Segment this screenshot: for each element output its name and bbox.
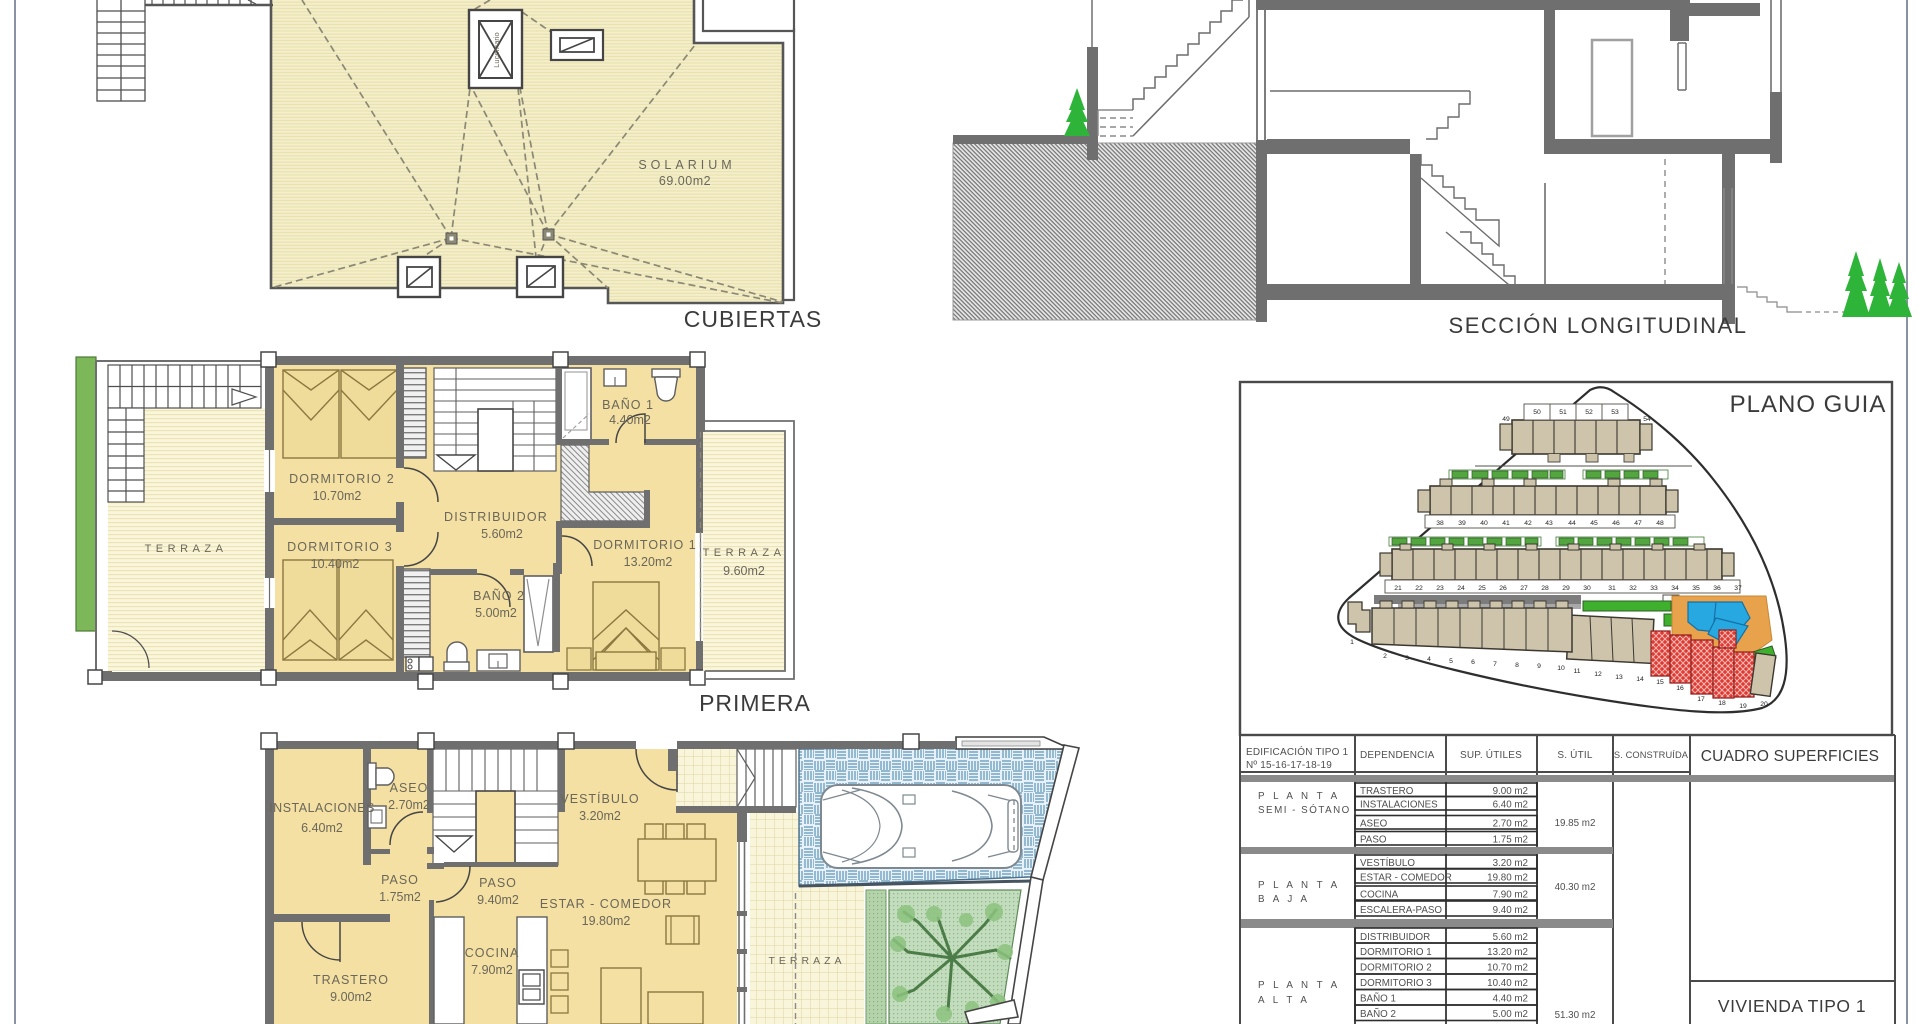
svg-text:6: 6 [1471, 659, 1475, 666]
svg-text:48: 48 [1656, 520, 1664, 527]
svg-text:33: 33 [1650, 585, 1658, 592]
svg-text:P L A N T A: P L A N T A [1258, 791, 1340, 802]
svg-text:TERRAZA: TERRAZA [703, 547, 786, 559]
svg-text:36: 36 [1713, 585, 1721, 592]
svg-text:40: 40 [1480, 520, 1488, 527]
svg-text:7.90 m2: 7.90 m2 [1493, 890, 1528, 901]
svg-text:32: 32 [1629, 585, 1637, 592]
svg-text:15: 15 [1656, 679, 1664, 686]
svg-text:43: 43 [1545, 520, 1553, 527]
svg-text:12: 12 [1594, 671, 1602, 678]
svg-text:BAÑO 2: BAÑO 2 [473, 589, 525, 603]
svg-text:S. CONSTRUÍDA: S. CONSTRUÍDA [1614, 750, 1689, 760]
svg-text:13: 13 [1615, 674, 1623, 681]
svg-text:41: 41 [1502, 520, 1510, 527]
svg-text:40.30 m2: 40.30 m2 [1555, 882, 1596, 893]
svg-text:54: 54 [1643, 416, 1651, 423]
svg-text:3.20m2: 3.20m2 [579, 809, 621, 823]
svg-text:10: 10 [1557, 665, 1565, 672]
svg-text:9.00m2: 9.00m2 [330, 990, 372, 1004]
svg-text:49: 49 [1502, 416, 1510, 423]
svg-text:9.00 m2: 9.00 m2 [1493, 786, 1528, 797]
svg-text:5.60 m2: 5.60 m2 [1493, 932, 1528, 943]
svg-text:9.60m2: 9.60m2 [723, 564, 765, 578]
svg-text:4: 4 [1427, 656, 1431, 663]
svg-text:7.90m2: 7.90m2 [471, 963, 513, 977]
svg-text:44: 44 [1568, 520, 1576, 527]
svg-text:29: 29 [1562, 585, 1570, 592]
svg-text:PASO: PASO [479, 876, 517, 890]
svg-text:51.30 m2: 51.30 m2 [1555, 1010, 1596, 1021]
svg-text:ASEO: ASEO [390, 781, 429, 795]
svg-text:2.70m2: 2.70m2 [388, 798, 430, 812]
svg-text:BAÑO 1: BAÑO 1 [602, 398, 654, 412]
svg-text:28: 28 [1541, 585, 1549, 592]
svg-text:24: 24 [1457, 585, 1465, 592]
svg-text:30: 30 [1583, 585, 1591, 592]
svg-text:4.40 m2: 4.40 m2 [1493, 994, 1528, 1005]
svg-text:23: 23 [1436, 585, 1444, 592]
svg-text:COCINA: COCINA [1360, 890, 1399, 901]
svg-text:COCINA: COCINA [465, 946, 520, 960]
svg-text:10.70m2: 10.70m2 [313, 489, 362, 503]
svg-text:51: 51 [1559, 409, 1567, 416]
svg-text:A L T A: A L T A [1258, 995, 1310, 1006]
svg-text:PASO: PASO [1360, 835, 1387, 846]
svg-text:5: 5 [1449, 658, 1453, 665]
svg-text:Nº 15-16-17-18-19: Nº 15-16-17-18-19 [1246, 760, 1332, 771]
svg-text:5.00m2: 5.00m2 [475, 606, 517, 620]
svg-text:16: 16 [1676, 685, 1684, 692]
svg-text:SEMI - SÓTANO: SEMI - SÓTANO [1258, 805, 1351, 816]
svg-text:1.75 m2: 1.75 m2 [1493, 835, 1528, 846]
svg-text:35: 35 [1692, 585, 1700, 592]
svg-text:25: 25 [1478, 585, 1486, 592]
svg-text:Lucernario: Lucernario [492, 32, 501, 67]
svg-text:5.00 m2: 5.00 m2 [1493, 1009, 1528, 1020]
svg-text:P L A N T A: P L A N T A [1258, 880, 1340, 891]
svg-text:CUADRO SUPERFICIES: CUADRO SUPERFICIES [1701, 748, 1879, 765]
svg-text:DORMITORIO 2: DORMITORIO 2 [1360, 963, 1432, 974]
svg-text:ESTAR - COMEDOR: ESTAR - COMEDOR [540, 897, 672, 911]
svg-text:6.40 m2: 6.40 m2 [1493, 800, 1528, 811]
svg-text:VESTÍBULO: VESTÍBULO [560, 791, 639, 806]
svg-text:SOLARIUM: SOLARIUM [638, 158, 735, 172]
svg-text:42: 42 [1524, 520, 1532, 527]
svg-text:ESCALERA-PASO: ESCALERA-PASO [1360, 905, 1442, 916]
svg-text:1.75m2: 1.75m2 [379, 890, 421, 904]
svg-text:3.20 m2: 3.20 m2 [1493, 858, 1528, 869]
svg-text:INSTALACIONES: INSTALACIONES [1360, 800, 1438, 811]
svg-text:2.70 m2: 2.70 m2 [1493, 819, 1528, 830]
svg-text:46: 46 [1612, 520, 1620, 527]
svg-text:69.00m2: 69.00m2 [659, 174, 711, 188]
svg-text:TERRAZA: TERRAZA [145, 543, 228, 555]
svg-text:TERRAZA: TERRAZA [768, 955, 845, 967]
svg-text:50: 50 [1533, 409, 1541, 416]
svg-text:3: 3 [1405, 655, 1409, 662]
svg-text:VIVIENDA TIPO 1: VIVIENDA TIPO 1 [1718, 996, 1866, 1016]
svg-text:B A J A: B A J A [1258, 894, 1310, 905]
svg-text:38: 38 [1436, 520, 1444, 527]
svg-text:PLANO GUIA: PLANO GUIA [1730, 391, 1887, 418]
svg-text:8: 8 [1515, 662, 1519, 669]
svg-text:DORMITORIO 3: DORMITORIO 3 [287, 540, 393, 554]
svg-text:SUP. ÚTILES: SUP. ÚTILES [1460, 748, 1522, 761]
svg-text:22: 22 [1415, 585, 1423, 592]
svg-text:ASEO: ASEO [1360, 819, 1388, 830]
svg-text:7: 7 [1493, 661, 1497, 668]
svg-text:10.40 m2: 10.40 m2 [1487, 978, 1528, 989]
svg-text:27: 27 [1520, 585, 1528, 592]
svg-text:20: 20 [1760, 701, 1768, 708]
svg-text:9.40 m2: 9.40 m2 [1493, 905, 1528, 916]
svg-text:47: 47 [1634, 520, 1642, 527]
svg-text:VESTÍBULO: VESTÍBULO [1360, 858, 1415, 869]
svg-text:DISTRIBUIDOR: DISTRIBUIDOR [1360, 932, 1430, 943]
svg-text:6.40m2: 6.40m2 [301, 821, 343, 835]
svg-text:INSTALACIONES: INSTALACIONES [269, 801, 375, 815]
svg-text:37: 37 [1734, 585, 1742, 592]
svg-text:53: 53 [1611, 409, 1619, 416]
svg-text:11: 11 [1573, 668, 1580, 675]
svg-text:DORMITORIO 2: DORMITORIO 2 [289, 472, 395, 486]
svg-text:DISTRIBUIDOR: DISTRIBUIDOR [444, 510, 548, 524]
svg-text:1: 1 [1350, 639, 1354, 646]
svg-text:DORMITORIO 1: DORMITORIO 1 [1360, 947, 1432, 958]
svg-text:19.80 m2: 19.80 m2 [1487, 873, 1528, 884]
svg-text:13.20m2: 13.20m2 [624, 555, 673, 569]
svg-text:EDIFICACIÓN TIPO 1: EDIFICACIÓN TIPO 1 [1246, 745, 1349, 758]
svg-text:PRIMERA: PRIMERA [699, 690, 811, 716]
svg-text:19.85 m2: 19.85 m2 [1555, 818, 1596, 829]
svg-text:ESTAR - COMEDOR: ESTAR - COMEDOR [1360, 873, 1452, 884]
svg-text:21: 21 [1394, 585, 1402, 592]
svg-text:S. ÚTIL: S. ÚTIL [1557, 748, 1593, 761]
svg-text:5.60m2: 5.60m2 [481, 527, 523, 541]
svg-text:SECCIÓN LONGITUDINAL: SECCIÓN LONGITUDINAL [1449, 313, 1748, 338]
svg-text:4.40m2: 4.40m2 [609, 413, 651, 427]
svg-text:DORMITORIO 3: DORMITORIO 3 [1360, 978, 1432, 989]
svg-text:DEPENDENCIA: DEPENDENCIA [1360, 750, 1435, 761]
svg-text:BAÑO 1: BAÑO 1 [1360, 994, 1396, 1005]
svg-text:BAÑO 2: BAÑO 2 [1360, 1009, 1396, 1020]
svg-text:2: 2 [1383, 653, 1387, 660]
svg-text:9: 9 [1537, 663, 1541, 670]
svg-text:26: 26 [1499, 585, 1507, 592]
svg-text:13.20 m2: 13.20 m2 [1487, 947, 1528, 958]
svg-text:PASO: PASO [381, 873, 419, 887]
svg-text:19: 19 [1739, 703, 1747, 710]
svg-text:DORMITORIO 1: DORMITORIO 1 [593, 538, 696, 552]
svg-text:19.80m2: 19.80m2 [582, 914, 631, 928]
svg-text:CUBIERTAS: CUBIERTAS [684, 306, 823, 332]
svg-text:14: 14 [1636, 676, 1644, 683]
svg-text:9.40m2: 9.40m2 [477, 893, 519, 907]
svg-text:39: 39 [1458, 520, 1466, 527]
svg-text:52: 52 [1585, 409, 1593, 416]
svg-text:TRASTERO: TRASTERO [313, 973, 389, 987]
svg-text:18: 18 [1718, 700, 1726, 707]
svg-text:45: 45 [1590, 520, 1598, 527]
svg-text:P L A N T A: P L A N T A [1258, 980, 1340, 991]
svg-text:31: 31 [1608, 585, 1616, 592]
svg-text:10.40m2: 10.40m2 [311, 557, 360, 571]
svg-text:10.70 m2: 10.70 m2 [1487, 963, 1528, 974]
svg-text:17: 17 [1697, 696, 1705, 703]
svg-text:34: 34 [1671, 585, 1679, 592]
svg-text:TRASTERO: TRASTERO [1360, 786, 1414, 797]
